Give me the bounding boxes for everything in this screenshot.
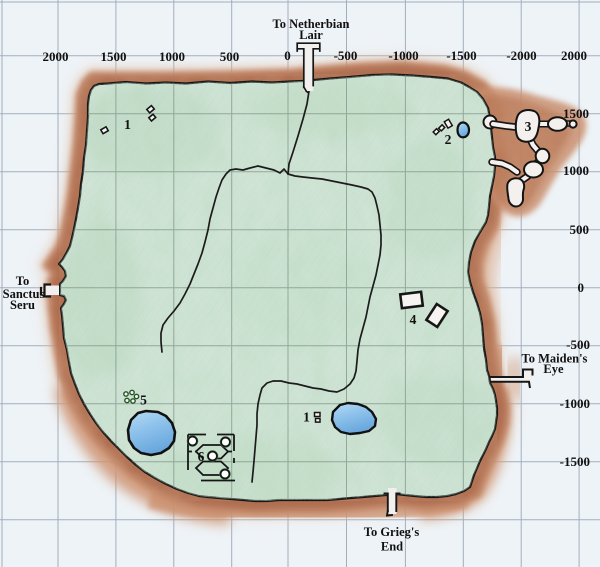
svg-text:1: 1 (124, 117, 131, 132)
svg-text:1: 1 (303, 410, 310, 425)
svg-text:To Grieg's: To Grieg's (364, 525, 420, 539)
svg-text:1500: 1500 (563, 106, 589, 121)
svg-text:-500: -500 (334, 48, 358, 63)
svg-text:2000: 2000 (561, 48, 587, 63)
svg-text:-1000: -1000 (388, 48, 418, 63)
svg-text:500: 500 (570, 222, 590, 237)
svg-text:1000: 1000 (159, 49, 185, 64)
svg-text:Eye: Eye (543, 362, 564, 376)
svg-text:3: 3 (525, 119, 532, 134)
svg-text:6: 6 (198, 449, 205, 464)
svg-text:1500: 1500 (101, 49, 127, 64)
svg-text:5: 5 (140, 393, 147, 408)
svg-text:Lair: Lair (299, 28, 323, 42)
svg-text:End: End (381, 540, 403, 554)
svg-text:-1000: -1000 (560, 396, 590, 411)
svg-text:-500: -500 (566, 337, 590, 352)
svg-text:2000: 2000 (43, 49, 69, 64)
svg-text:To: To (16, 274, 29, 288)
svg-text:Seru: Seru (10, 298, 35, 312)
svg-text:500: 500 (220, 49, 240, 64)
svg-text:4: 4 (410, 312, 417, 327)
svg-text:2: 2 (445, 132, 452, 147)
svg-text:0: 0 (284, 48, 291, 63)
svg-text:-1500: -1500 (560, 454, 590, 469)
svg-text:1000: 1000 (563, 163, 589, 178)
svg-text:-1500: -1500 (446, 48, 476, 63)
svg-text:0: 0 (578, 280, 585, 295)
svg-text:-2000: -2000 (506, 48, 536, 63)
